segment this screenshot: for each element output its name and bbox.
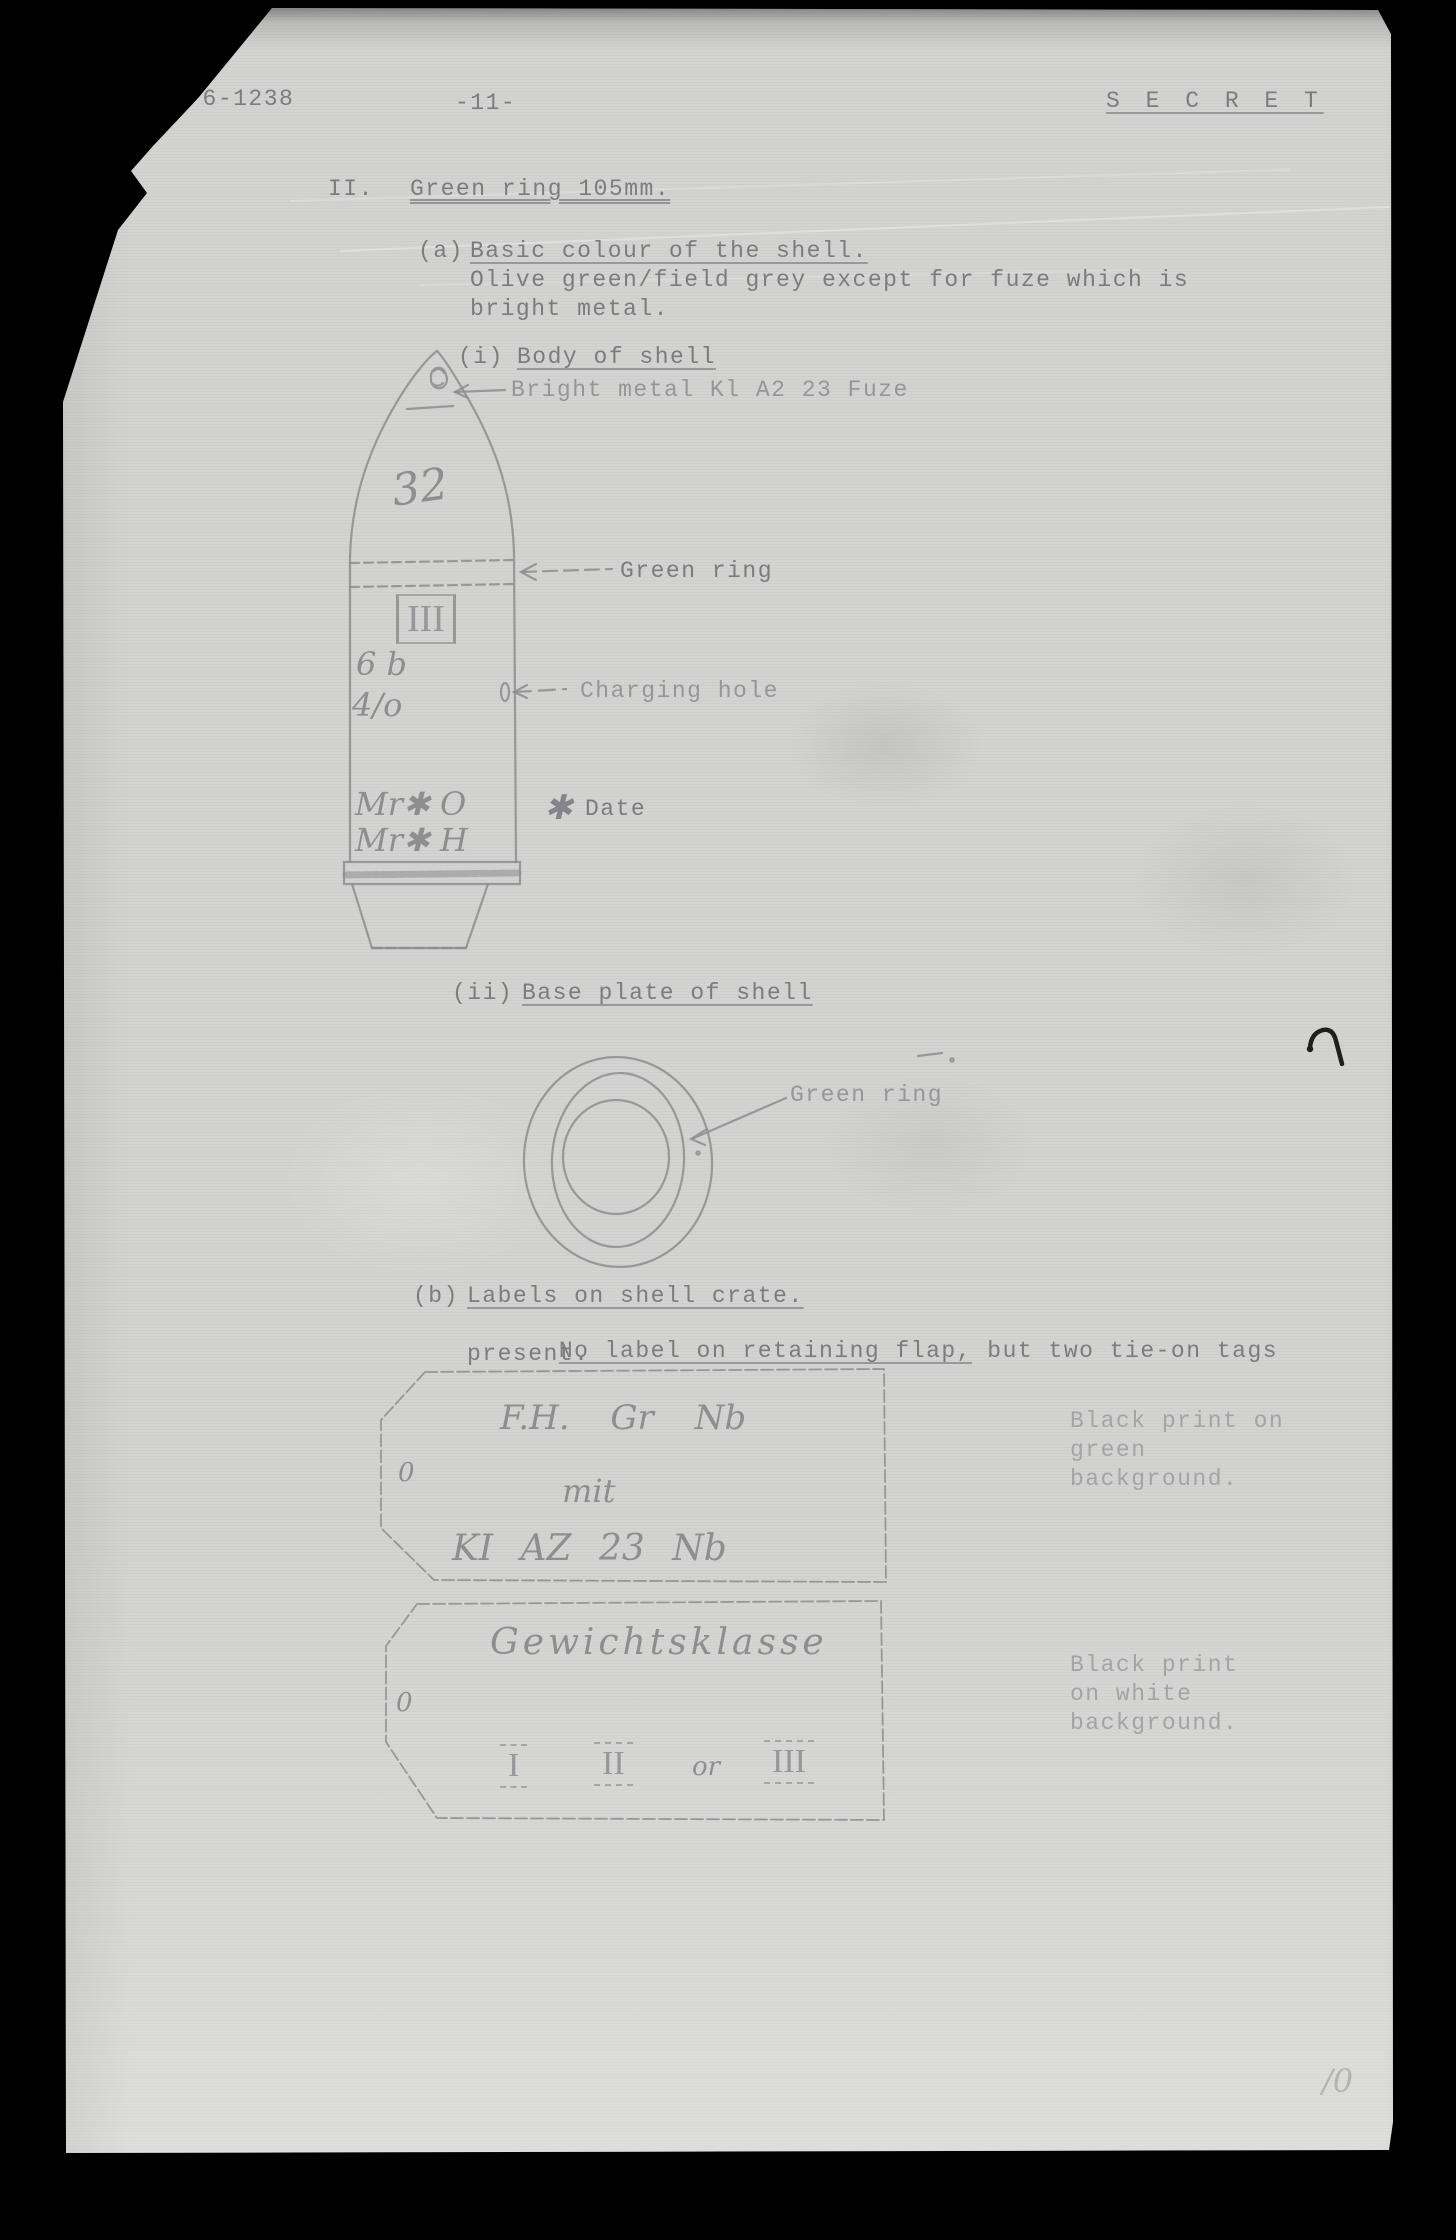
section-numeral: II. xyxy=(328,176,374,202)
tag1-note-line: Black print on xyxy=(1070,1408,1284,1434)
item-b-body-line: present. xyxy=(467,1341,589,1367)
item-a-label: (a) xyxy=(418,238,464,264)
tag1-line2: mit xyxy=(562,1472,615,1510)
charging-hole-label: Charging hole xyxy=(580,678,779,704)
item-i-label: (i) xyxy=(458,344,504,370)
tag1-note-line: background. xyxy=(1070,1466,1238,1492)
base-plate-ring-label: Green ring xyxy=(790,1082,943,1108)
item-a-body-line: Olive green/field grey except for fuze w… xyxy=(470,267,1189,293)
item-a-body-line: bright metal. xyxy=(470,296,669,322)
item-ii-heading: Base plate of shell xyxy=(522,980,813,1006)
tag2-note-line: background. xyxy=(1070,1710,1238,1736)
tag2-hole-mark: 0 xyxy=(396,1688,413,1718)
charging-hole-callout-arrow-icon xyxy=(514,685,566,698)
fuze-callout-arrow-icon xyxy=(455,385,505,398)
fuze-scribble xyxy=(431,368,447,388)
shell-nose-number: 32 xyxy=(389,458,452,516)
tag2-note-line: on white xyxy=(1070,1681,1192,1707)
shell-mark-mr-o: Mr✱ O xyxy=(355,785,466,823)
shell-mark-mr-h: Mr✱ H xyxy=(355,821,468,859)
item-b-rest-phrase: but two tie-on tags xyxy=(972,1338,1278,1364)
date-label: Date xyxy=(585,796,646,822)
item-b-underlined-phrase: No label on retaining flap, xyxy=(559,1338,972,1364)
tag1-line1: F.H. Gr Nb xyxy=(500,1398,746,1438)
item-b-heading: Labels on shell crate. xyxy=(467,1283,804,1309)
tag2-numeral-3: III xyxy=(764,1740,814,1784)
tag2-title: Gewichtsklasse xyxy=(490,1622,828,1663)
doc-reference: D(W) 6-1238 xyxy=(126,86,294,112)
item-a-heading: Basic colour of the shell. xyxy=(470,238,868,264)
green-ring-band xyxy=(350,560,514,587)
scanned-document-page: D(W) 6-1238 -11- S E C R E T II. Green r… xyxy=(0,0,1456,2240)
pen-mark xyxy=(1307,1030,1342,1064)
tag2-conjunction: or xyxy=(692,1752,720,1782)
tag1-line3: KI AZ 23 Nb xyxy=(452,1528,727,1569)
page-number: -11- xyxy=(455,90,516,116)
date-star-icon: ✱ xyxy=(544,788,573,828)
classification-stamp: S E C R E T xyxy=(1106,88,1324,114)
tag2-note-line: Black print xyxy=(1070,1652,1238,1678)
tag1-hole-mark: 0 xyxy=(398,1458,415,1488)
footer-pencil-mark: /0 xyxy=(1322,2062,1353,2100)
shell-mark-4o: 4/o xyxy=(352,686,402,724)
shell-weight-class-numeral: III xyxy=(396,594,456,644)
charging-hole xyxy=(501,683,509,701)
green-ring-label: Green ring xyxy=(620,558,773,584)
line-art-layer xyxy=(0,0,1456,2240)
item-ii-label: (ii) xyxy=(452,980,513,1006)
tag1-note-line: green xyxy=(1070,1437,1147,1463)
paper-sheet: D(W) 6-1238 -11- S E C R E T II. Green r… xyxy=(0,0,1456,2240)
green-ring-callout-arrow-icon xyxy=(521,564,612,580)
section-title: Green ring 105mm. xyxy=(410,176,670,202)
tag2-numeral-2: II xyxy=(594,1742,633,1786)
item-i-heading: Body of shell xyxy=(517,344,716,370)
base-plate-drawing xyxy=(517,1051,719,1274)
fuze-callout-label: Bright metal Kl A2 23 Fuze xyxy=(511,377,909,403)
tag2-numeral-1: I xyxy=(500,1744,527,1788)
shell-mark-6b: 6 b xyxy=(356,645,407,683)
item-b-label: (b) xyxy=(413,1283,459,1309)
